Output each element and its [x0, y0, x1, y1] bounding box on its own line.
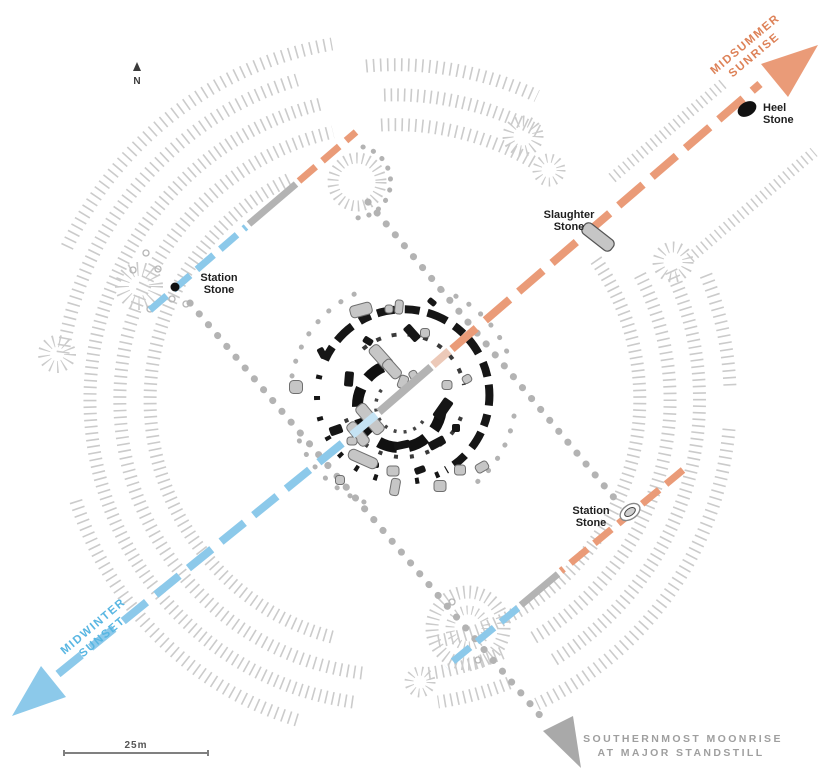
svg-text:Stone: Stone	[554, 221, 585, 233]
north-arrow-icon	[133, 62, 141, 71]
north-label: N	[133, 76, 140, 87]
station-stone-se-label: Station Stone	[572, 505, 610, 529]
axis-gray-segment	[379, 367, 431, 412]
moonrise-label: SOUTHERNMOST MOONRISE AT MAJOR STANDSTIL…	[583, 733, 783, 759]
north-barrow	[333, 147, 391, 218]
scale-label: 25m	[124, 740, 147, 751]
svg-text:AT MAJOR STANDSTILL: AT MAJOR STANDSTILL	[597, 747, 764, 759]
north-indicator: N	[133, 62, 141, 87]
station-stone-nw	[171, 283, 180, 292]
svg-text:SOUTHERNMOST MOONRISE: SOUTHERNMOST MOONRISE	[583, 733, 783, 745]
svg-text:Heel: Heel	[763, 102, 786, 114]
stonehenge-plan: 25m N MIDSUMMER SUNRISE MIDWINTER SUNSET…	[0, 0, 825, 780]
svg-text:Stone: Stone	[576, 517, 607, 529]
svg-text:Stone: Stone	[763, 114, 794, 126]
station-rectangle-dotted-lines	[190, 202, 616, 719]
midwinter-sunset-label: MIDWINTER SUNSET	[59, 596, 138, 668]
heel-stone-label: Heel Stone	[763, 102, 794, 126]
dotted-line-sw-side	[190, 303, 543, 719]
nw-station-axis	[150, 132, 356, 310]
axis-fade-orange	[433, 351, 449, 365]
svg-text:Stone: Stone	[204, 284, 235, 296]
earthwork-bank	[63, 44, 730, 720]
midsummer-sunrise-arrowhead	[761, 45, 818, 97]
dotted-line-ne-side	[368, 202, 616, 500]
se-station-axis	[446, 470, 683, 667]
svg-text:Station: Station	[200, 272, 238, 284]
svg-text:Station: Station	[572, 505, 610, 517]
svg-text:Slaughter: Slaughter	[544, 209, 595, 221]
station-stone-nw-label: Station Stone	[200, 272, 238, 296]
plan-canvas: 25m N MIDSUMMER SUNRISE MIDWINTER SUNSET…	[0, 0, 825, 780]
moonrise-arrowhead	[543, 716, 581, 768]
